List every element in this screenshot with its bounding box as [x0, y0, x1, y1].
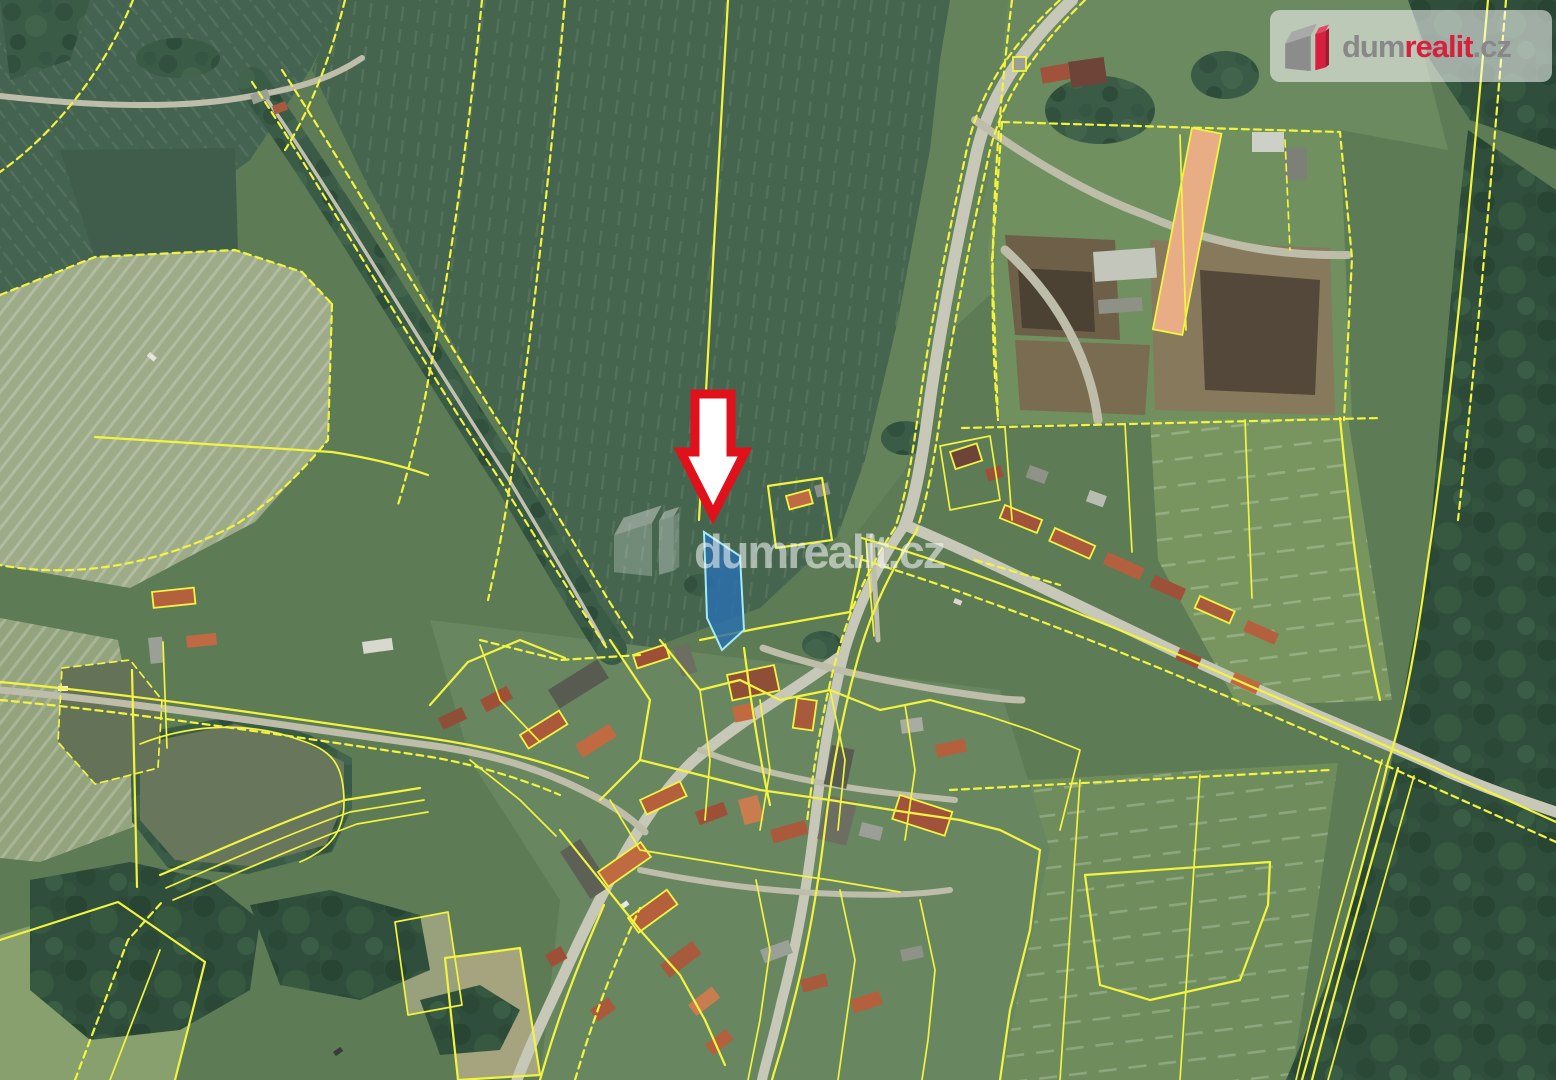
map-canvas — [0, 0, 1556, 1080]
dumrealit-logo-icon — [1285, 20, 1331, 73]
logo-text: dumrealit.cz — [1342, 31, 1511, 62]
logo-text-prefix: dum — [1342, 29, 1404, 64]
dumrealit-logo-badge: dumrealit.cz — [1270, 10, 1552, 82]
aerial-map: dumrealit.cz dumrealit.cz — [0, 0, 1556, 1080]
logo-text-suffix: .cz — [1473, 29, 1511, 64]
logo-text-emphasis: realit — [1404, 29, 1472, 64]
